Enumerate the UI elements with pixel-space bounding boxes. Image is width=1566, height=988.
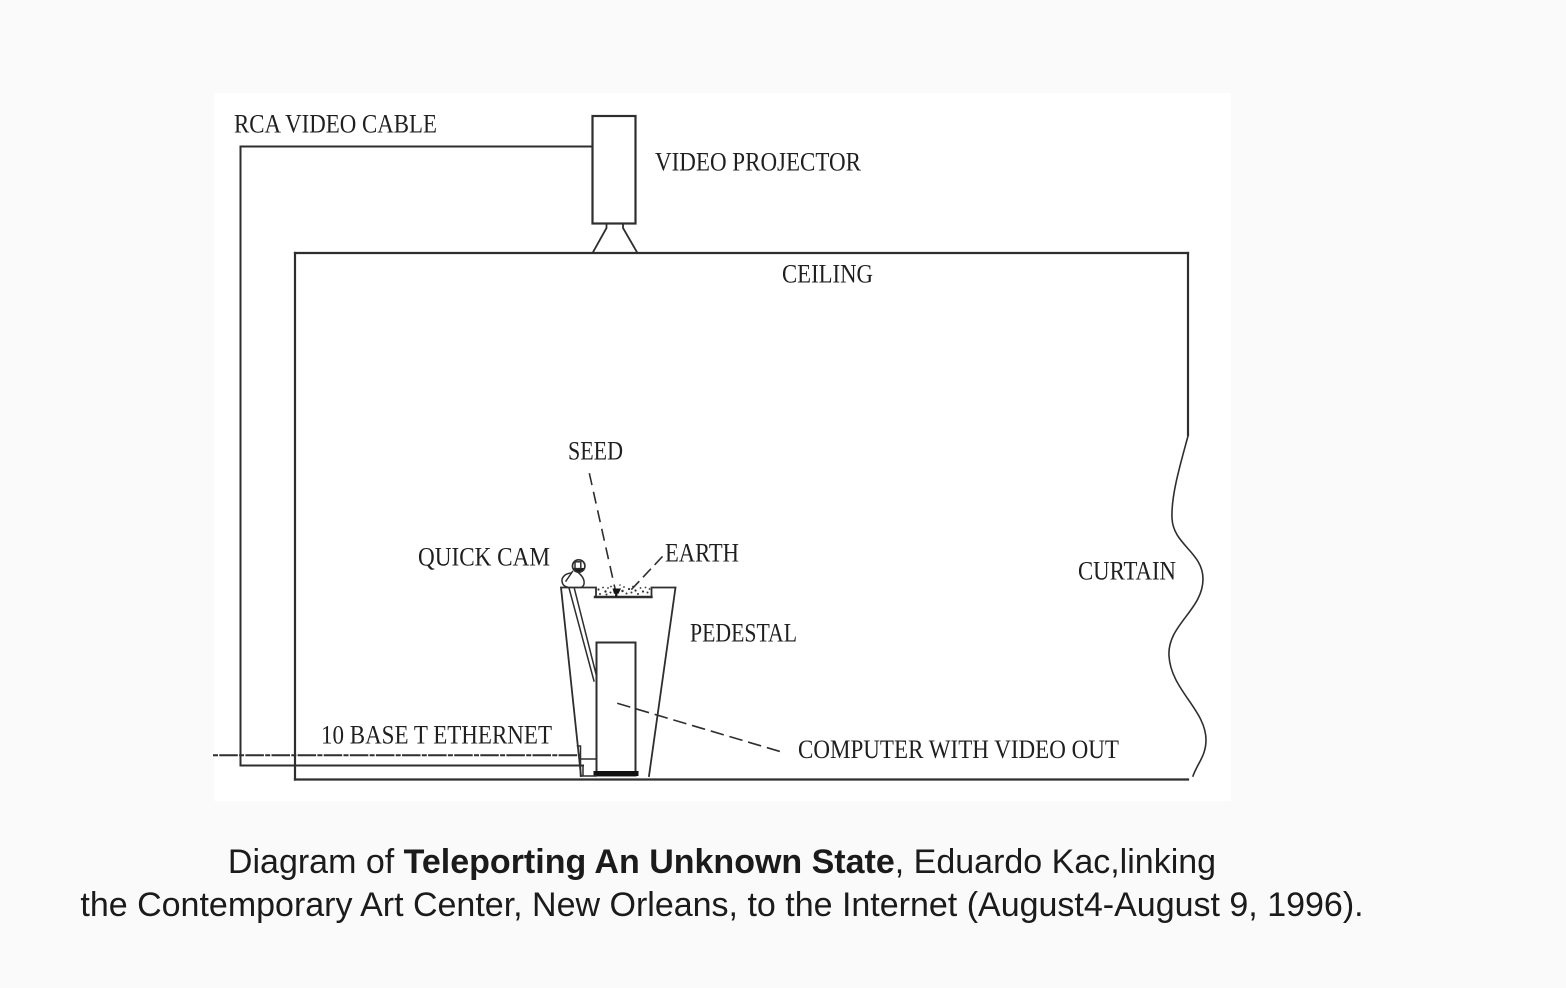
svg-text:COMPUTER WITH VIDEO OUT: COMPUTER WITH VIDEO OUT (798, 735, 1119, 764)
svg-text:QUICK CAM: QUICK CAM (418, 543, 550, 572)
svg-text:10 BASE T ETHERNET: 10 BASE T ETHERNET (321, 721, 552, 750)
svg-text:VIDEO PROJECTOR: VIDEO PROJECTOR (655, 148, 862, 177)
svg-text:RCA VIDEO CABLE: RCA VIDEO CABLE (234, 110, 437, 139)
svg-text:CEILING: CEILING (782, 260, 873, 289)
svg-text:SEED: SEED (568, 437, 623, 466)
svg-text:PEDESTAL: PEDESTAL (690, 619, 797, 648)
svg-text:EARTH: EARTH (665, 539, 739, 568)
svg-text:CURTAIN: CURTAIN (1078, 557, 1176, 586)
